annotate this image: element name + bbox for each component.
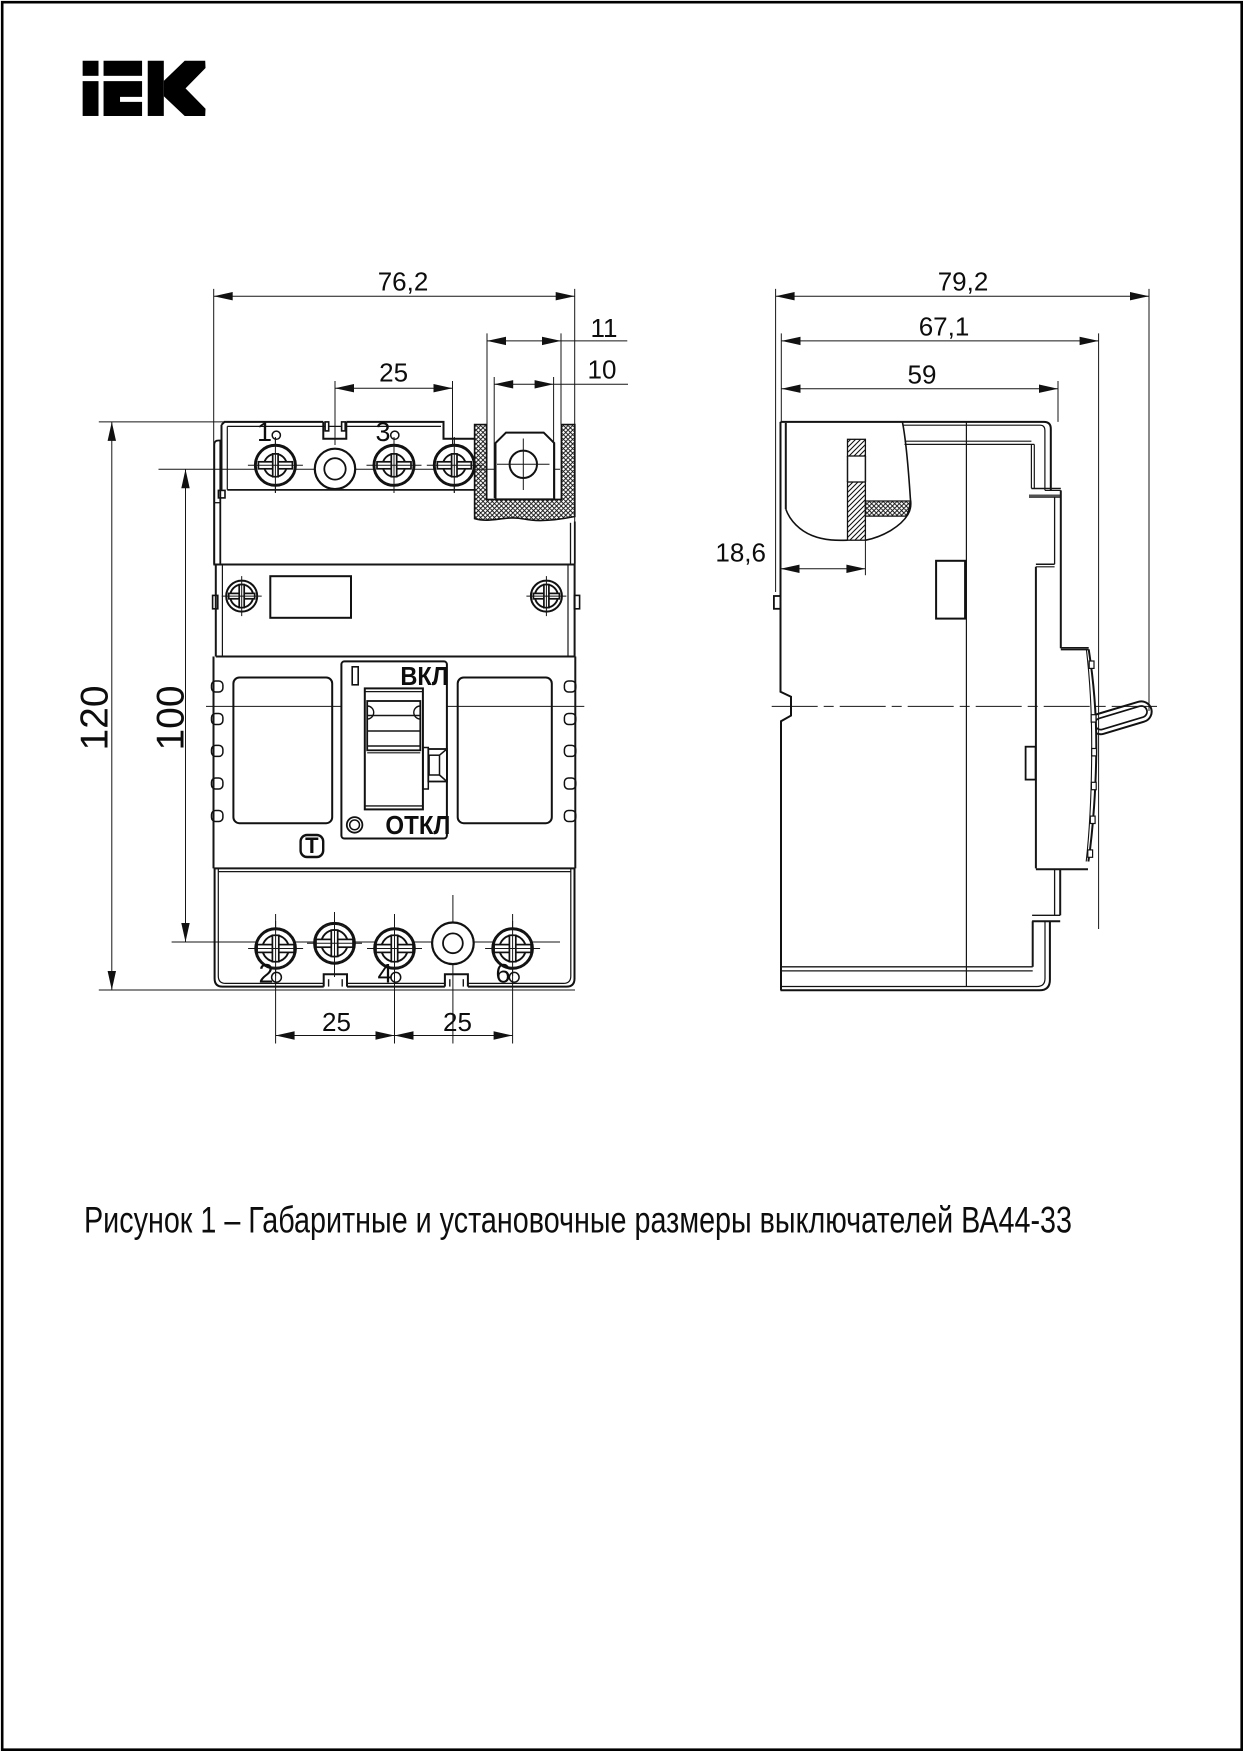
svg-text:120: 120 xyxy=(74,685,117,750)
svg-text:59: 59 xyxy=(908,359,937,389)
svg-text:25: 25 xyxy=(322,1007,351,1037)
svg-text:67,1: 67,1 xyxy=(919,312,970,342)
svg-text:76,2: 76,2 xyxy=(378,267,429,297)
svg-text:10: 10 xyxy=(588,355,617,385)
svg-text:25: 25 xyxy=(379,358,408,388)
svg-text:100: 100 xyxy=(150,685,193,750)
svg-text:25: 25 xyxy=(443,1007,472,1037)
svg-text:4: 4 xyxy=(377,959,392,989)
svg-text:T: T xyxy=(305,833,319,858)
svg-text:2: 2 xyxy=(258,959,273,989)
svg-text:6: 6 xyxy=(495,959,510,989)
svg-text:Рисунок 1 – Габаритные и устан: Рисунок 1 – Габаритные и установочные ра… xyxy=(84,1199,1072,1240)
svg-text:3: 3 xyxy=(375,417,390,447)
svg-text:1: 1 xyxy=(257,417,272,447)
svg-text:ОТКЛ: ОТКЛ xyxy=(385,810,450,840)
svg-text:18,6: 18,6 xyxy=(715,538,766,568)
svg-text:79,2: 79,2 xyxy=(938,267,989,297)
svg-text:11: 11 xyxy=(591,313,618,343)
svg-text:ВКЛ: ВКЛ xyxy=(400,661,448,691)
